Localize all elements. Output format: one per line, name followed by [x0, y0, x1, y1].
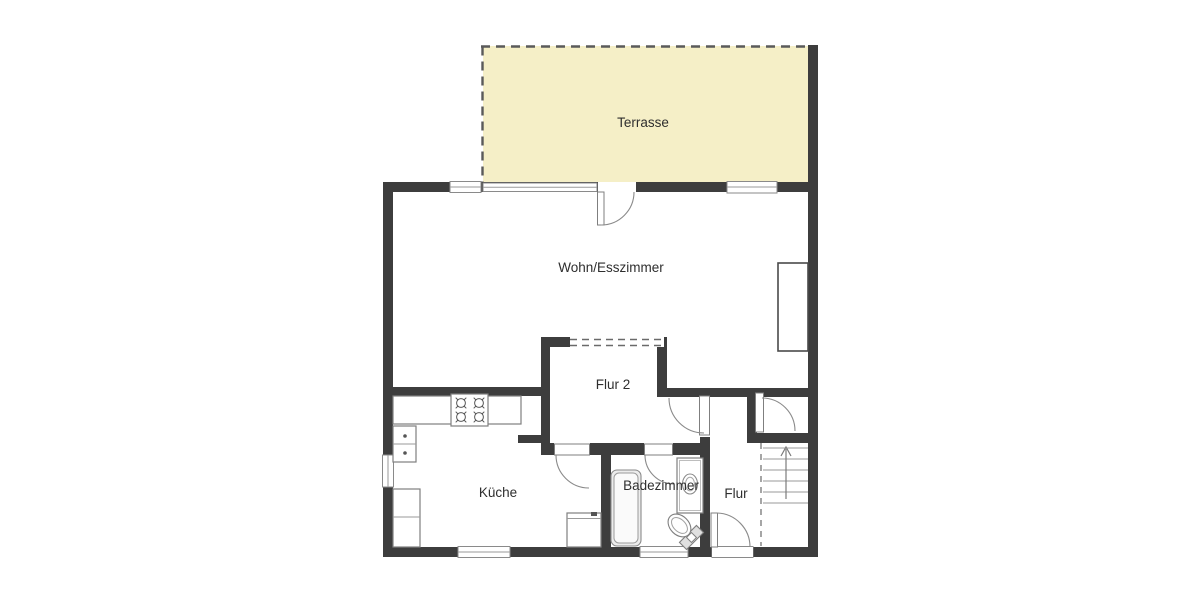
floor-plan-canvas: Terrasse Wohn/Esszimmer Flur 2 Küche Bad…	[0, 0, 1200, 600]
appliance-handle	[591, 512, 597, 516]
entrance-door-leaf	[711, 513, 718, 547]
wall-living-bottom-right	[657, 388, 818, 397]
terrace-door-swing	[601, 192, 634, 225]
kitchen-door-leaf	[555, 444, 590, 455]
wall-bath-left	[601, 455, 611, 547]
hall-door-leaf	[700, 396, 710, 435]
opening-entrance-door	[712, 547, 753, 557]
staircase	[761, 443, 808, 546]
label-badezimmer: Badezimmer	[623, 478, 699, 493]
floor-plan-page: Terrasse Wohn/Esszimmer Flur 2 Küche Bad…	[0, 0, 1200, 600]
wall-right	[808, 45, 818, 557]
entrance-door-swing	[717, 513, 750, 547]
wall-left	[383, 182, 393, 557]
stair-door-leaf	[756, 393, 764, 432]
kitchen-lower-counter	[393, 489, 420, 547]
wall-niche	[778, 263, 808, 351]
opening-terrace-door	[598, 182, 636, 192]
bathroom-door-leaf	[645, 444, 673, 455]
stair-door-swing	[762, 398, 795, 431]
toilet	[662, 508, 704, 550]
terrace-door-leaf	[598, 192, 605, 225]
label-kueche: Küche	[479, 485, 517, 500]
label-wohn-esszimmer: Wohn/Esszimmer	[558, 260, 664, 275]
label-flur-2: Flur 2	[596, 377, 631, 392]
kitchen-door-swing	[556, 455, 589, 488]
terrace-area	[481, 46, 809, 182]
sink-drain	[403, 451, 407, 455]
kitchen-fixtures	[393, 394, 601, 547]
label-terrasse: Terrasse	[617, 115, 669, 130]
hall-door-swing	[669, 398, 704, 433]
wall-kitchen-nook-stub	[518, 435, 549, 443]
doors	[555, 192, 796, 547]
terrace-surface	[483, 46, 808, 182]
sink-drain	[403, 434, 407, 438]
bathroom-fixtures	[611, 458, 704, 550]
wall-stair-top	[747, 433, 818, 443]
label-flur: Flur	[724, 486, 748, 501]
openings	[383, 182, 778, 558]
